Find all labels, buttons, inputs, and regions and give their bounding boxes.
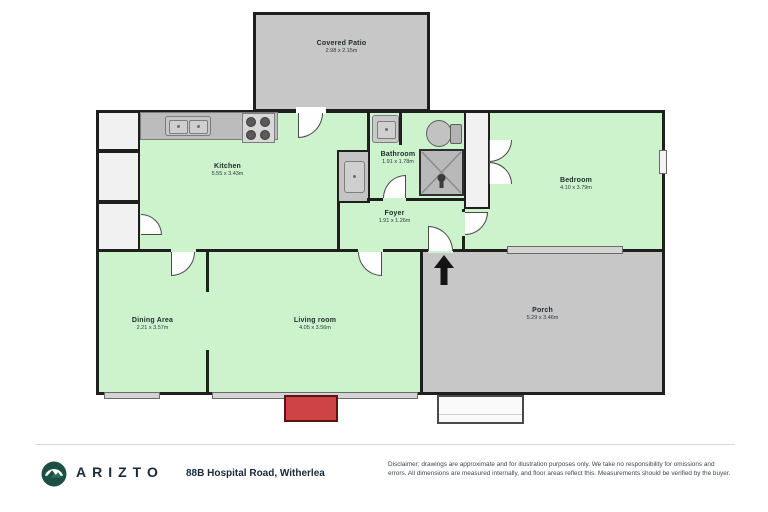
porch-room xyxy=(420,249,665,395)
dining-living-wall-top xyxy=(206,252,209,292)
north-arrow-icon xyxy=(433,255,455,285)
left-bay-1 xyxy=(97,111,140,151)
dining-bottom-window xyxy=(104,392,160,399)
bedroom-bottom-window xyxy=(507,246,623,254)
shower xyxy=(419,149,464,196)
left-bay-3 xyxy=(97,202,140,251)
bathroom-bottom-wall xyxy=(367,198,465,201)
front-step-red xyxy=(284,395,338,422)
stove xyxy=(242,113,275,143)
foyer-left-wall xyxy=(337,203,340,252)
kitchen-sink xyxy=(165,116,211,136)
property-address: 88B Hospital Road, Witherlea xyxy=(186,468,325,479)
kitchen-bath-wall xyxy=(367,112,370,152)
footer-divider xyxy=(35,444,735,445)
disclaimer-text: Disclaimer; drawings are approximate and… xyxy=(388,461,734,478)
toilet-tank xyxy=(450,124,462,144)
bathroom-vanity xyxy=(372,115,399,143)
laundry-tub xyxy=(337,150,370,203)
bedroom-right-window xyxy=(659,150,667,174)
covered-patio-room xyxy=(253,12,430,112)
arizto-logo-icon xyxy=(41,461,67,487)
arizto-wordmark: ARIZTO xyxy=(76,464,164,480)
disclaimer-line-2: All dimensions are measured internally, … xyxy=(408,470,730,477)
hall-closet xyxy=(464,111,490,209)
floor-plan-page: Covered Patio 2.98 x 2.15m xyxy=(0,0,768,512)
left-bay-2 xyxy=(97,151,140,202)
dining-living-wall-bottom xyxy=(206,350,209,393)
porch-step xyxy=(437,395,524,424)
toilet-bowl xyxy=(426,120,452,147)
vanity-niche-wall xyxy=(399,112,402,145)
